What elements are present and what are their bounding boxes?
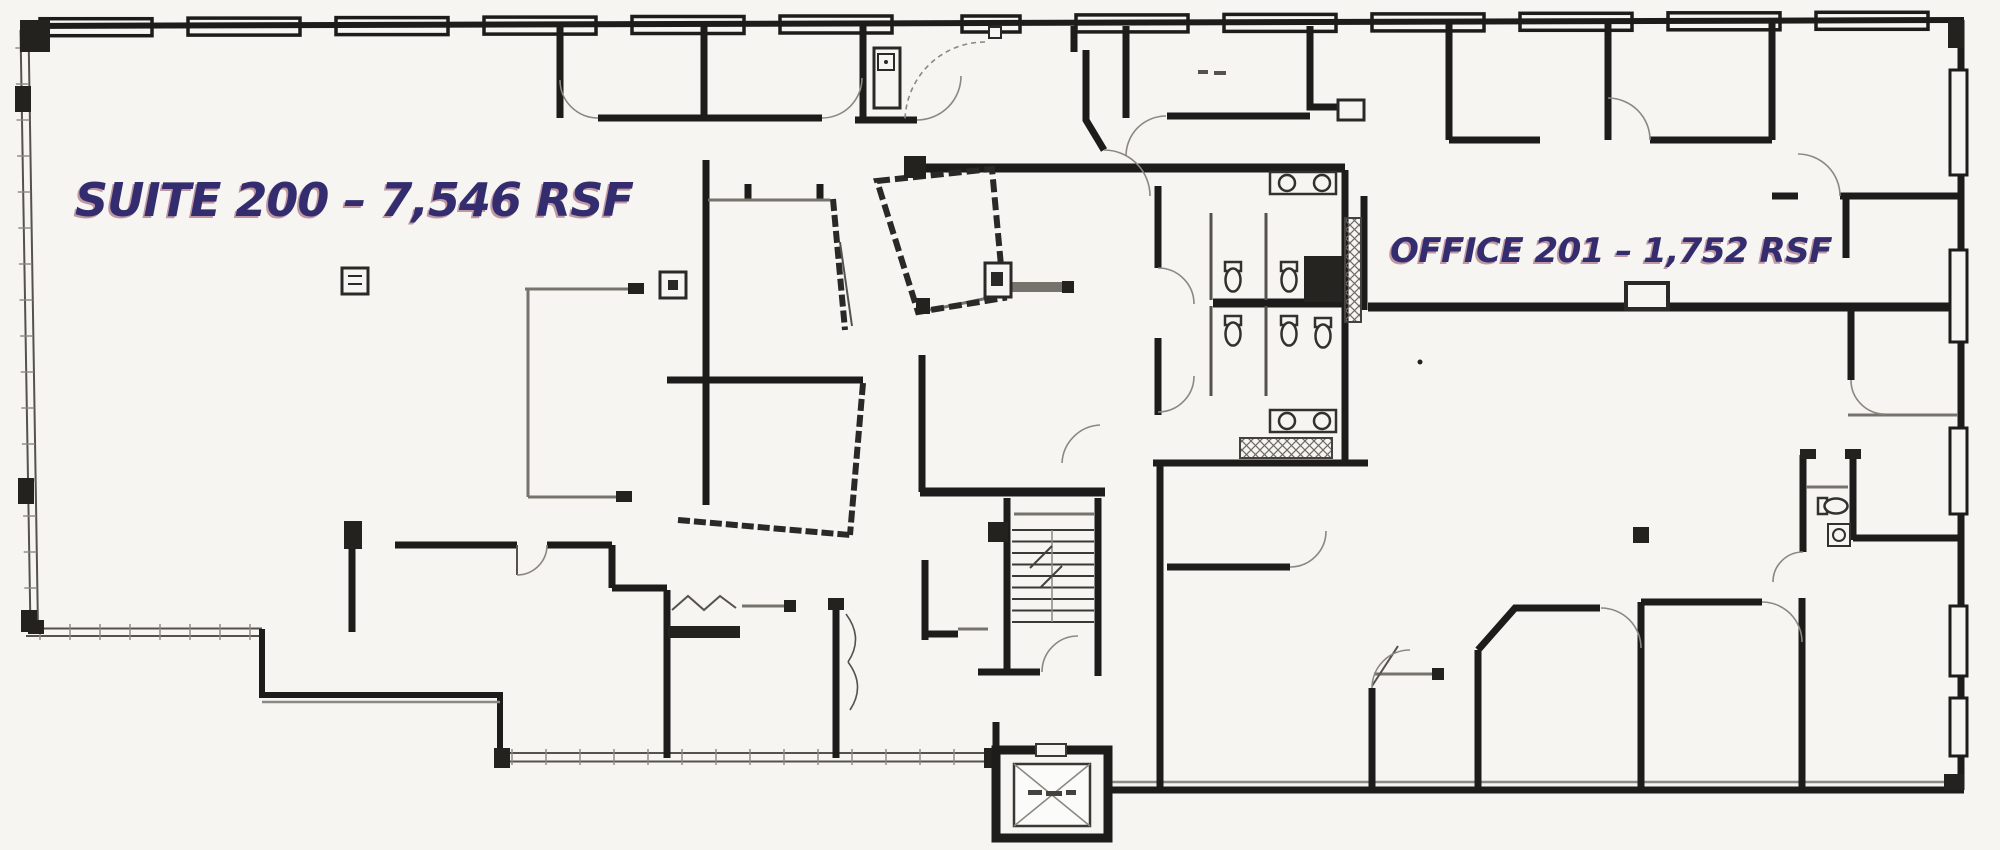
shaft-x-hatch: [1345, 218, 1361, 322]
window-box: [1950, 428, 1967, 514]
door-swing-arc: [560, 80, 598, 118]
entry-door-panel: [989, 27, 1001, 38]
door-swing-arc: [1158, 268, 1194, 304]
closet-shelf: [668, 626, 740, 638]
toilet-icon: [1225, 262, 1241, 292]
door-swing-arc: [1158, 376, 1194, 412]
bath-sink: [1828, 524, 1850, 546]
door-swing-arc: [1798, 154, 1840, 196]
wall-cap: [904, 156, 926, 178]
window-box: [1950, 70, 1967, 175]
door-swing-arc: [517, 545, 547, 575]
sink-icon: [1279, 413, 1295, 429]
sink-icon: [1833, 529, 1845, 541]
wall-cap: [494, 748, 510, 768]
wall-cap: [616, 491, 632, 502]
interior-wall-heavy: [905, 168, 1958, 492]
window-wall-left: [15, 30, 38, 629]
toilet-bowl: [1282, 269, 1297, 292]
door-swing-arc: [917, 76, 961, 120]
corner-block: [20, 20, 50, 52]
wall-cap: [344, 521, 362, 549]
column-markers: [342, 27, 1668, 543]
label-smudge: [1028, 790, 1042, 795]
toilet-bowl: [1226, 269, 1241, 292]
floor-plan: SUITE 200 – 7,546 RSF SUITE 200 – 7,546 …: [0, 0, 2000, 850]
wall-junction-box: [1338, 100, 1364, 120]
wall-cap: [1845, 449, 1861, 459]
label-smudge: [1066, 790, 1076, 795]
window-rail: [500, 753, 996, 762]
closet-hanger-zigzag: [672, 596, 736, 610]
window-wall-bottom-left: [26, 624, 262, 640]
window-box: [1950, 698, 1967, 756]
column-marker-core: [668, 280, 678, 290]
pier-block: [15, 86, 31, 112]
wall-cap: [784, 600, 796, 612]
fixture-dot: [884, 60, 888, 64]
door-swing-arc: [1762, 602, 1802, 642]
wall-cap: [1062, 281, 1074, 293]
elevator-door-notch: [1036, 744, 1066, 756]
label-smudge: [1046, 791, 1062, 796]
toilet-bowl: [1282, 323, 1297, 346]
wall-cap: [1432, 668, 1444, 680]
door-swing-arc: [1042, 636, 1078, 672]
stray-dot: [1418, 360, 1423, 365]
sink-icon: [1314, 175, 1330, 191]
shaft-solid-block: [1304, 256, 1342, 302]
toilet-bowl: [1825, 499, 1848, 514]
door-swing-arc: [1372, 650, 1410, 688]
labels: SUITE 200 – 7,546 RSF SUITE 200 – 7,546 …: [73, 173, 1832, 273]
stairwell: [1012, 530, 1094, 622]
tiny-text-smudge: [1214, 71, 1226, 75]
toilet-icon: [1225, 316, 1241, 346]
bifold-door: [846, 614, 858, 710]
sink-icon: [1279, 175, 1295, 191]
door-swing-arc: [822, 78, 862, 118]
pier-block: [18, 478, 34, 504]
door-swing-arc: [1062, 425, 1100, 463]
door-swing-arc: [1104, 150, 1150, 196]
pier-block: [21, 610, 37, 632]
toilet-bowl: [1316, 325, 1331, 348]
interior-wall-main: [352, 22, 1958, 790]
corner-block: [1944, 774, 1964, 790]
window-box: [1950, 606, 1967, 676]
toilet-icon: [1315, 318, 1331, 348]
door-swing-arc: [1851, 380, 1885, 414]
tiny-text-smudge: [1198, 70, 1208, 74]
wall-cap: [1800, 449, 1816, 459]
toilet-icon: [1281, 262, 1297, 292]
office-201-label: OFFICE 201 – 1,752 RSF: [1390, 231, 1832, 271]
wall-cap: [628, 283, 644, 294]
interior-walls: [352, 22, 1958, 790]
column-marker: [342, 268, 368, 294]
exterior-steps: [262, 629, 500, 760]
door-swing-arc: [1608, 98, 1650, 140]
toilet-icon: [1281, 316, 1297, 346]
shaft-x-hatch: [1240, 438, 1332, 458]
column-marker-solid: [1633, 527, 1649, 543]
door-swing-arc: [1290, 531, 1326, 567]
wall-cap: [916, 298, 930, 314]
column-marker-core: [991, 272, 1003, 286]
toilet-icon: [1818, 498, 1848, 514]
door-jamb: [828, 598, 844, 610]
wall-junction-box: [1626, 283, 1668, 309]
window-rail: [26, 629, 262, 637]
door-swing-arc: [1773, 552, 1803, 582]
toilet-bowl: [1226, 323, 1241, 346]
elevator-shaft: [996, 744, 1108, 838]
door-swing-arc: [1601, 608, 1641, 648]
sink-icon: [1314, 413, 1330, 429]
corner-block: [1948, 20, 1964, 48]
door-swing-arc: [1126, 116, 1166, 156]
suite-200-label: SUITE 200 – 7,546 RSF: [75, 173, 634, 227]
entry-door-swing-arc: [905, 42, 985, 120]
window-wall-bottom-center: [500, 749, 996, 765]
floor-plan-page: SUITE 200 – 7,546 RSF SUITE 200 – 7,546 …: [0, 0, 2000, 850]
column-block: [988, 522, 1008, 542]
window-box: [1950, 250, 1967, 342]
